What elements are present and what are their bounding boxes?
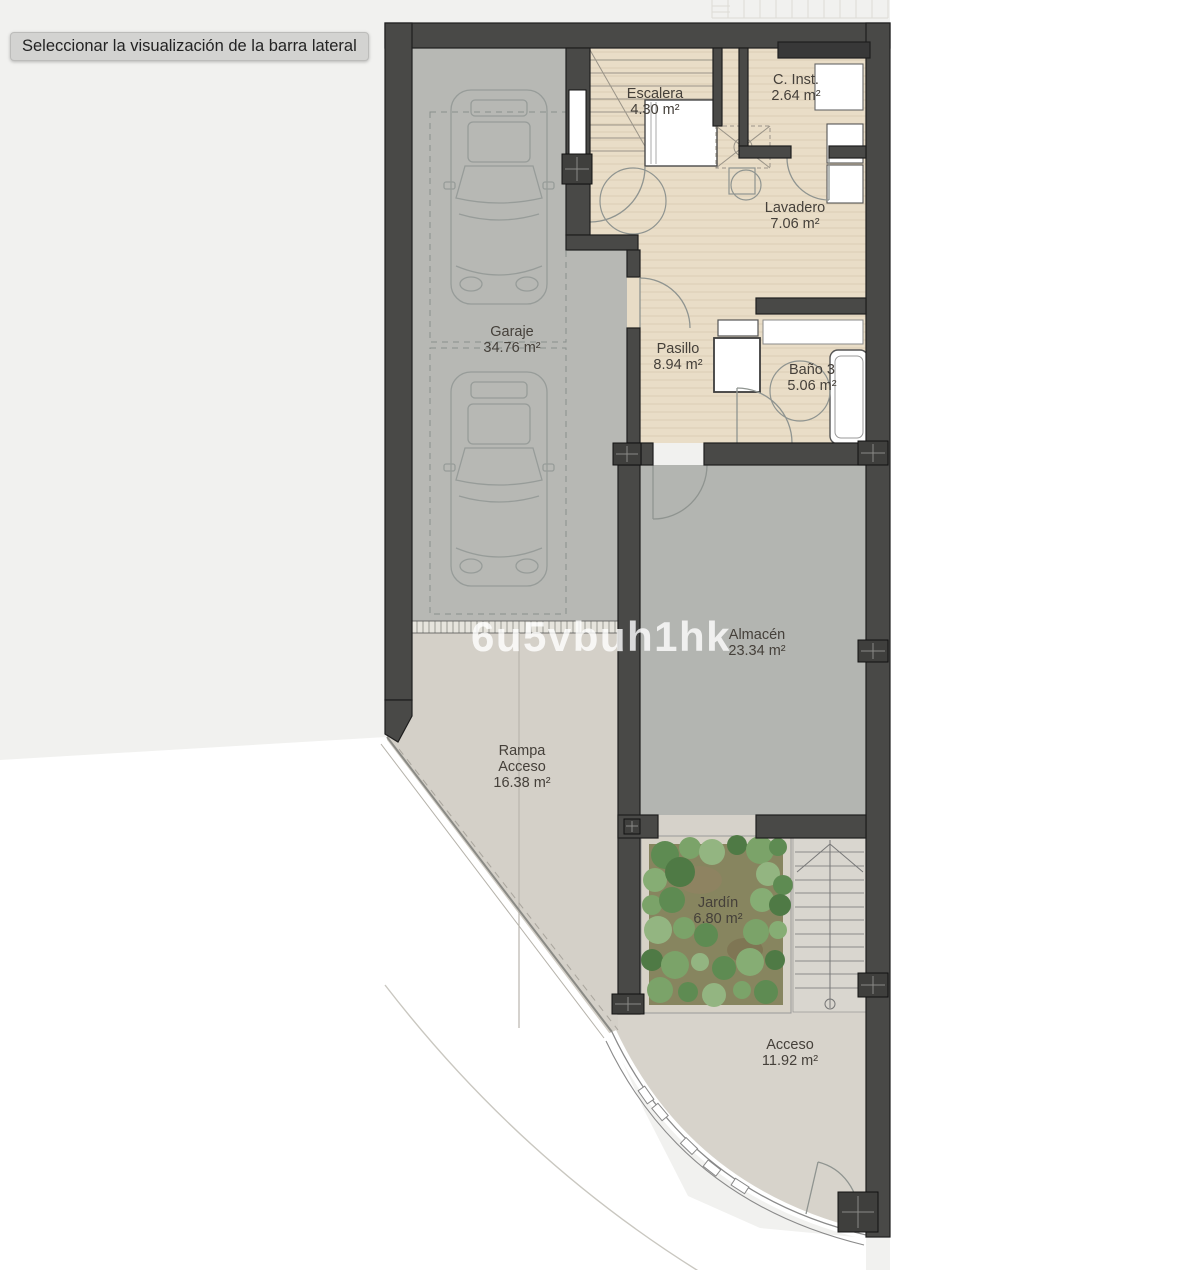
room-label-pasillo: Pasillo 8.94 m² — [653, 341, 702, 373]
room-label-lavadero: Lavadero 7.06 m² — [765, 200, 825, 232]
room-area: 6.80 m² — [693, 911, 742, 927]
exterior-stairs — [793, 838, 866, 1012]
room-label-garaje: Garaje 34.76 m² — [483, 324, 540, 356]
room-name: Garaje — [483, 324, 540, 340]
room-label-acceso: Acceso 11.92 m² — [762, 1037, 818, 1069]
room-name: Almacén — [728, 627, 785, 643]
room-name: Acceso — [762, 1037, 818, 1053]
room-label-jardin: Jardín 6.80 m² — [693, 895, 742, 927]
watermark-text: 6u5vbuh1hk — [471, 613, 731, 661]
wc — [718, 320, 758, 336]
wall-left — [385, 23, 412, 700]
wall-right — [866, 23, 890, 1237]
room-name: Escalera — [627, 86, 683, 102]
shower — [714, 338, 760, 392]
installations-box — [815, 64, 863, 110]
high-window-bar — [778, 42, 870, 58]
room-name: Rampa — [493, 743, 550, 759]
door-gap-garage — [627, 277, 640, 328]
room-area: 11.92 m² — [762, 1053, 818, 1069]
room-name: Acceso — [493, 759, 550, 775]
room-label-escalera: Escalera 4.30 m² — [627, 86, 683, 118]
room-name: Baño 3 — [787, 362, 836, 378]
room-name: C. Inst. — [771, 72, 820, 88]
room-area: 2.64 m² — [771, 88, 820, 104]
bath-counter — [763, 320, 863, 344]
room-label-bano3: Baño 3 5.06 m² — [787, 362, 836, 394]
room-name: Jardín — [693, 895, 742, 911]
room-label-almacen: Almacén 23.34 m² — [728, 627, 785, 659]
room-label-c-inst: C. Inst. 2.64 m² — [771, 72, 820, 104]
room-area: 34.76 m² — [483, 340, 540, 356]
room-area: 7.06 m² — [765, 216, 825, 232]
sidebar-view-tooltip: Seleccionar la visualización de la barra… — [10, 32, 369, 61]
room-label-rampa-acceso: Rampa Acceso 16.38 m² — [493, 743, 550, 791]
room-area: 16.38 m² — [493, 775, 550, 791]
room-name: Lavadero — [765, 200, 825, 216]
wall-window — [569, 90, 586, 158]
screenshot-canvas: Escalera 4.30 m² C. Inst. 2.64 m² Lavade… — [0, 0, 1200, 1270]
right-margin — [890, 0, 1200, 1270]
room-area: 8.94 m² — [653, 357, 702, 373]
room-area: 4.30 m² — [627, 102, 683, 118]
floor-path — [656, 815, 758, 838]
room-area: 5.06 m² — [787, 378, 836, 394]
room-name: Pasillo — [653, 341, 702, 357]
dryer — [827, 165, 863, 203]
room-area: 23.34 m² — [728, 643, 785, 659]
